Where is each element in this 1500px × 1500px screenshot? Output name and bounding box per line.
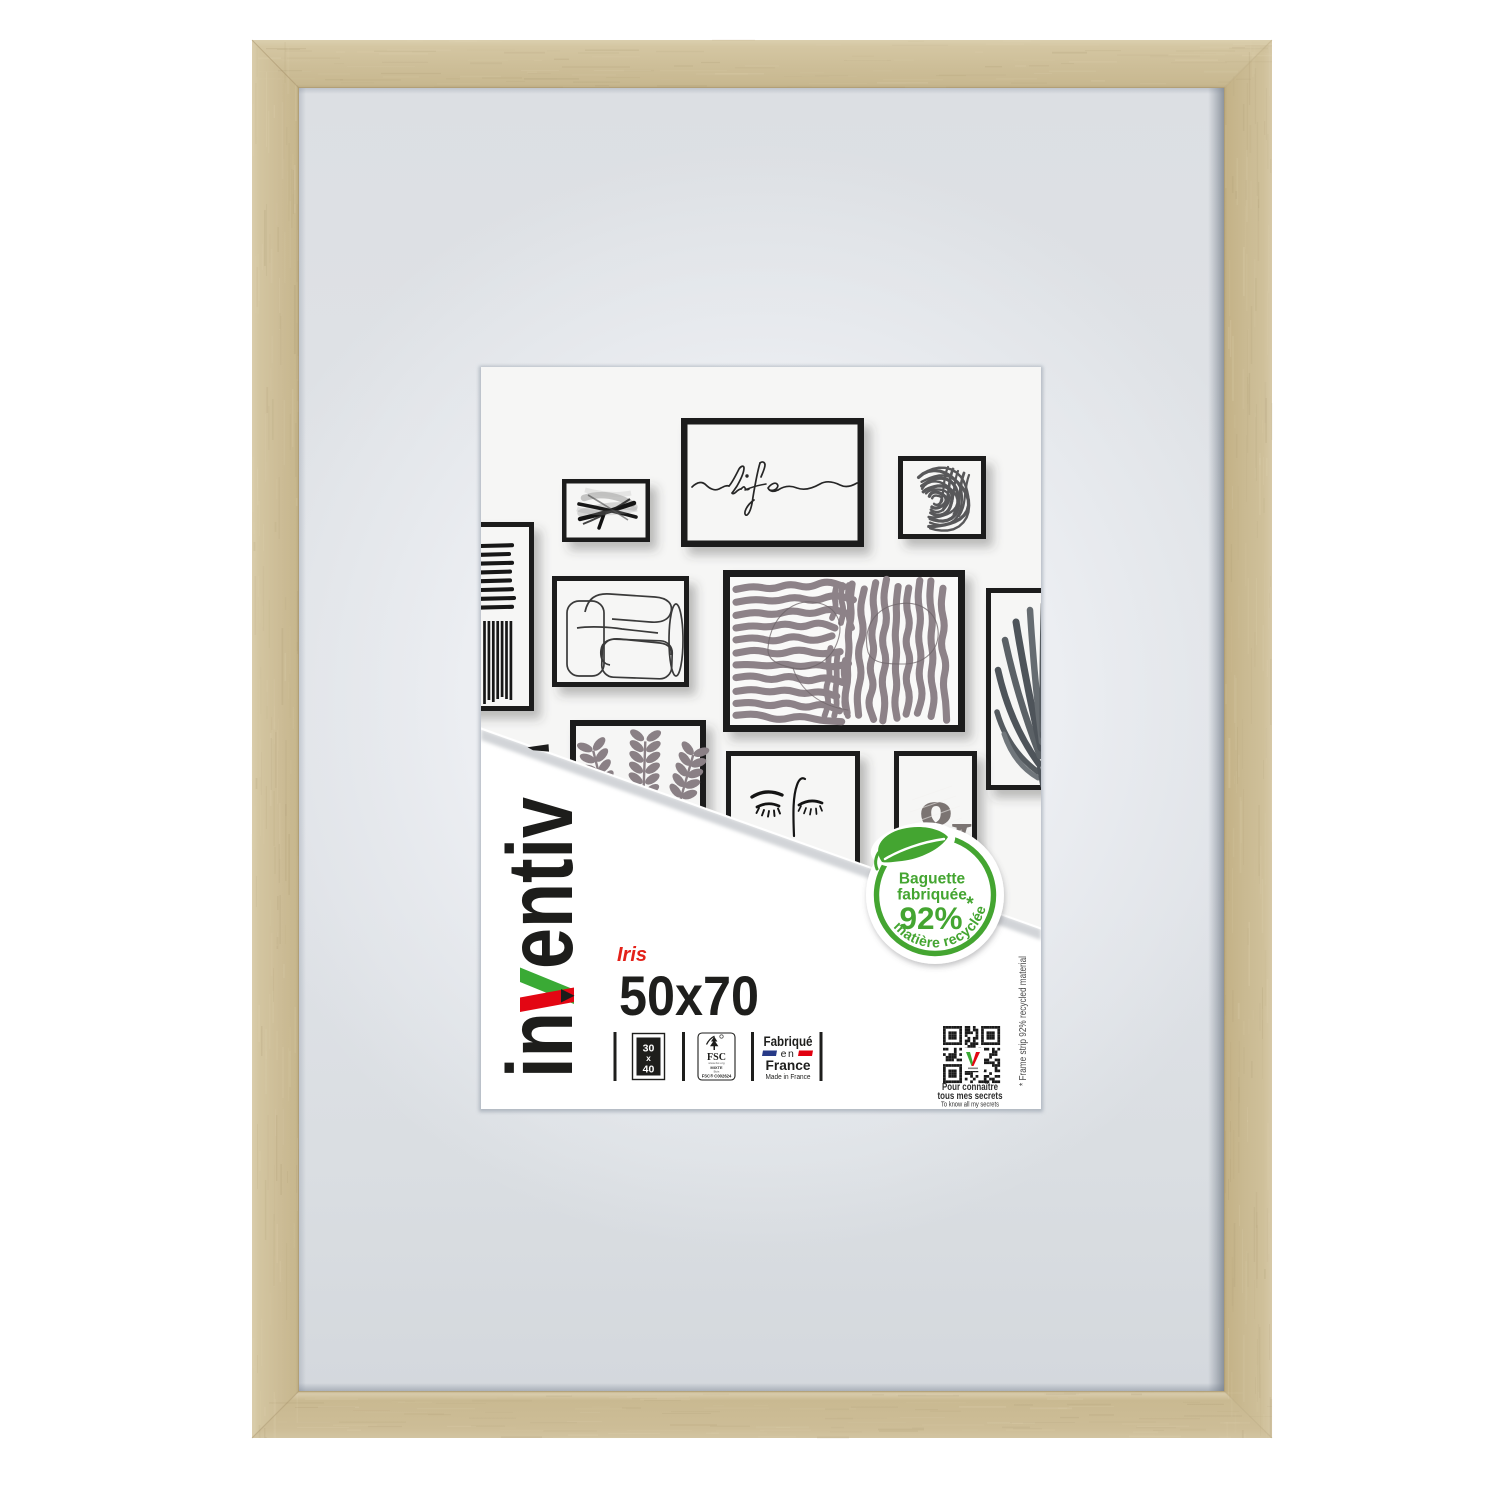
svg-text:To know all my secrets: To know all my secrets bbox=[941, 1102, 999, 1109]
svg-text:France: France bbox=[766, 1058, 811, 1073]
svg-text:Iris: Iris bbox=[617, 944, 647, 966]
svg-text:50x70: 50x70 bbox=[619, 964, 759, 1027]
svg-text:x: x bbox=[646, 1053, 651, 1063]
svg-text:Fabriqué: Fabriqué bbox=[764, 1034, 813, 1049]
svg-text:tous mes secrets: tous mes secrets bbox=[938, 1091, 1003, 1102]
svg-text:Made in France: Made in France bbox=[766, 1074, 811, 1081]
svg-text:entiv: entiv bbox=[488, 797, 592, 969]
svg-text:in: in bbox=[488, 1012, 592, 1078]
svg-text:Baguette: Baguette bbox=[899, 871, 966, 888]
svg-text:* Frame strip 92% recycled mat: * Frame strip 92% recycled material bbox=[1018, 956, 1029, 1086]
svg-text:FSC® C002624: FSC® C002624 bbox=[702, 1074, 732, 1079]
svg-text:40: 40 bbox=[643, 1064, 655, 1076]
